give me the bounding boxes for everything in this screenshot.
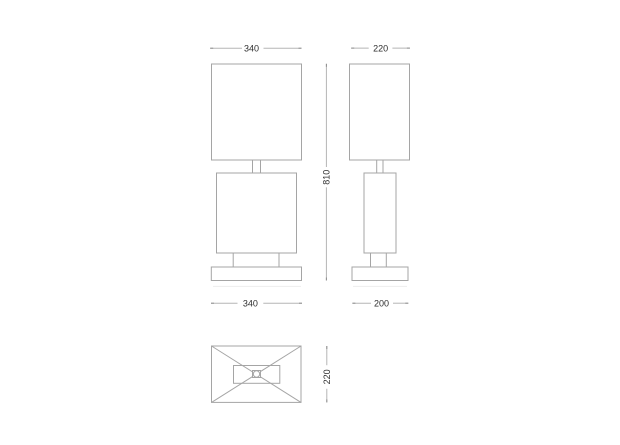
- svg-text:220: 220: [373, 43, 388, 53]
- svg-text:220: 220: [322, 369, 332, 384]
- svg-text:340: 340: [243, 298, 258, 308]
- svg-text:340: 340: [244, 43, 259, 53]
- svg-text:810: 810: [322, 170, 332, 185]
- svg-text:200: 200: [374, 298, 389, 308]
